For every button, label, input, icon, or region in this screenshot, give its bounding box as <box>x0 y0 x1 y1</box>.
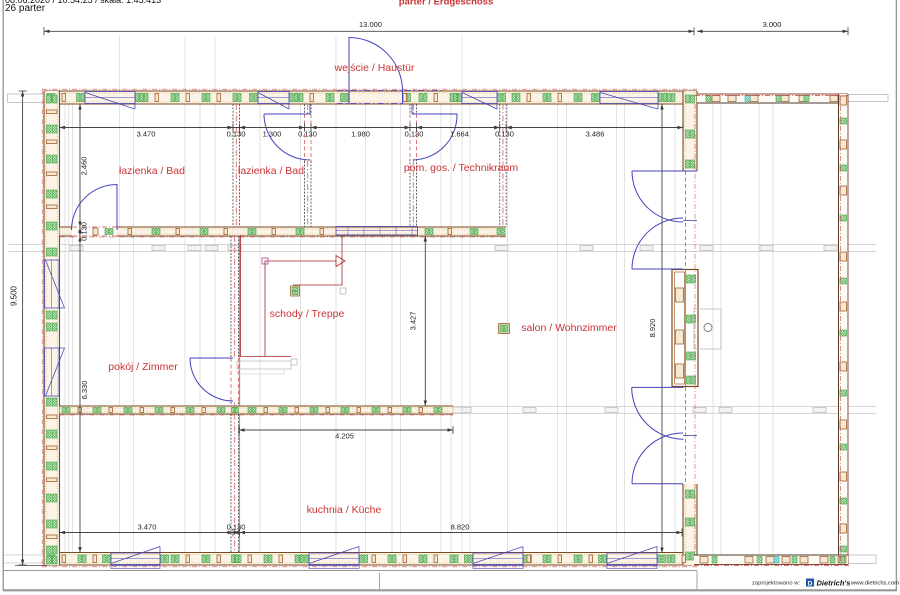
svg-text:wejście / Haustür: wejście / Haustür <box>334 62 415 74</box>
svg-text:zaprojektowano w:: zaprojektowano w: <box>752 581 800 587</box>
svg-text:0.130: 0.130 <box>405 130 424 139</box>
svg-text:0.130: 0.130 <box>495 130 514 139</box>
svg-text:26 parter: 26 parter <box>5 3 46 14</box>
svg-text:łazienka / Bad: łazienka / Bad <box>238 165 304 177</box>
svg-text:0.130: 0.130 <box>298 130 317 139</box>
svg-text:parter / Erdgeschoss: parter / Erdgeschoss <box>399 0 494 7</box>
svg-text:3.427: 3.427 <box>409 312 418 331</box>
svg-text:kuchnia / Küche: kuchnia / Küche <box>307 504 382 516</box>
svg-text:0.130: 0.130 <box>227 523 246 532</box>
svg-text:0.130: 0.130 <box>80 222 89 241</box>
svg-text:6.330: 6.330 <box>80 381 89 400</box>
svg-text:8.820: 8.820 <box>451 523 470 532</box>
svg-text:3.470: 3.470 <box>137 130 156 139</box>
svg-text:D: D <box>808 580 813 587</box>
svg-text:3.470: 3.470 <box>138 523 157 532</box>
svg-text:pom. gos. / Technikraum: pom. gos. / Technikraum <box>404 162 518 174</box>
svg-text:www.dietrichs.com: www.dietrichs.com <box>850 581 899 587</box>
svg-text:schody / Treppe: schody / Treppe <box>270 308 345 320</box>
svg-text:pokój / Zimmer: pokój / Zimmer <box>108 361 178 373</box>
svg-text:1.664: 1.664 <box>450 130 469 139</box>
svg-text:9.500: 9.500 <box>10 285 19 306</box>
svg-text:1.980: 1.980 <box>351 130 370 139</box>
svg-text:3.000: 3.000 <box>763 20 782 29</box>
svg-text:2.460: 2.460 <box>80 157 89 176</box>
svg-text:4.205: 4.205 <box>335 432 354 441</box>
svg-text:8.920: 8.920 <box>648 319 657 338</box>
svg-text:1.300: 1.300 <box>263 130 282 139</box>
svg-text:salon / Wohnzimmer: salon / Wohnzimmer <box>521 322 617 334</box>
svg-text:łazienka / Bad: łazienka / Bad <box>119 165 185 177</box>
svg-text:0.130: 0.130 <box>227 130 246 139</box>
svg-text:13.000: 13.000 <box>359 20 382 29</box>
svg-text:Dietrich's: Dietrich's <box>817 578 851 587</box>
svg-text:3.486: 3.486 <box>586 130 605 139</box>
